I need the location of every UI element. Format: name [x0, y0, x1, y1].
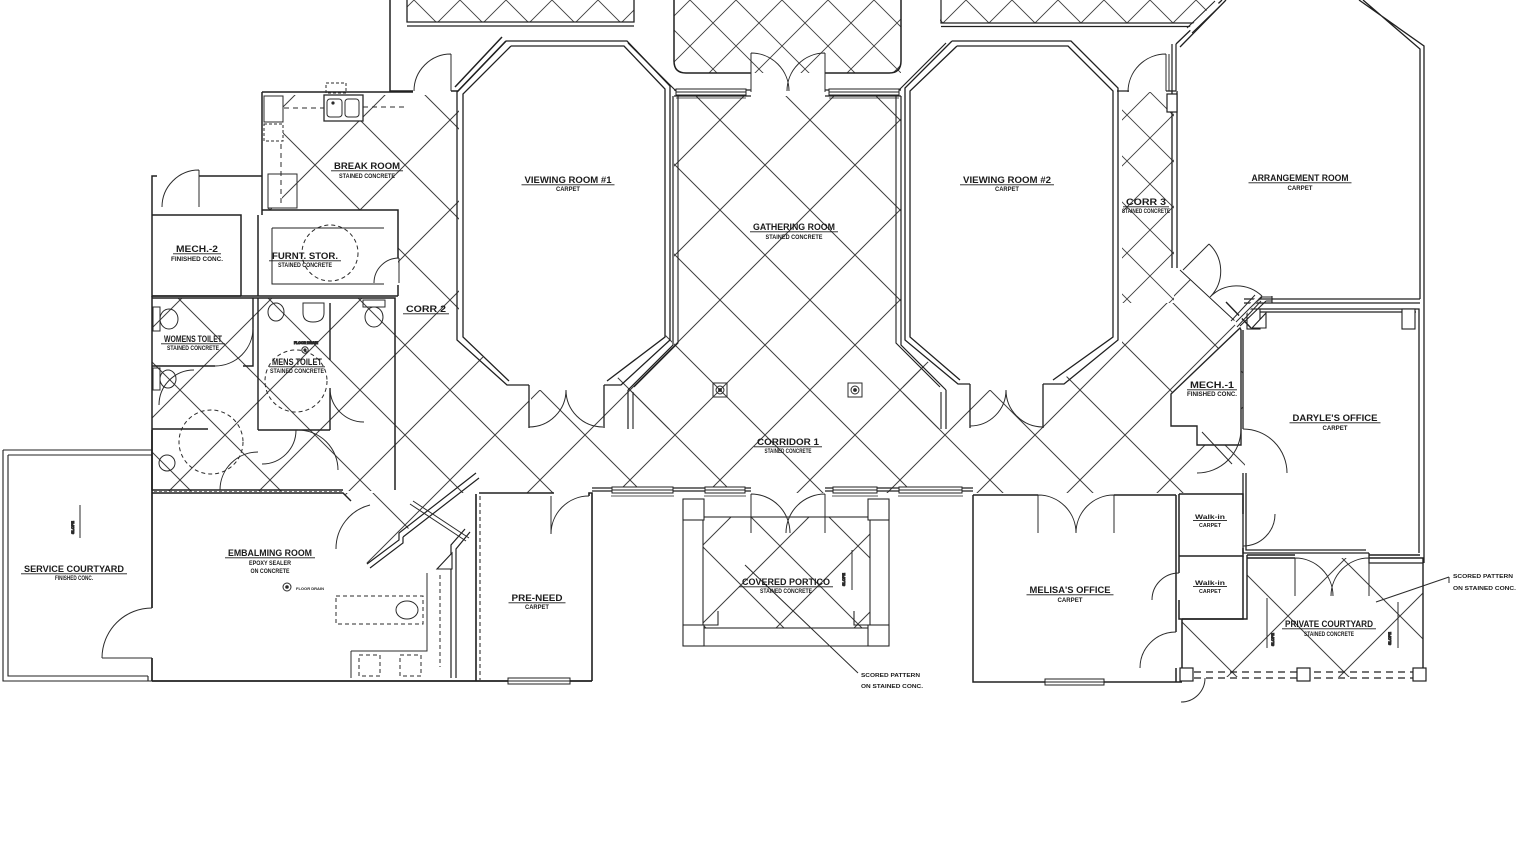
- svg-text:STAINED CONCRETE: STAINED CONCRETE: [1304, 632, 1354, 638]
- svg-text:STAINED CONCRETE: STAINED CONCRETE: [760, 589, 812, 595]
- svg-text:CARPET: CARPET: [1199, 523, 1221, 529]
- svg-text:CARPET: CARPET: [1199, 589, 1221, 595]
- svg-text:STAINED CONCRETE: STAINED CONCRETE: [278, 263, 332, 269]
- svg-text:Walk-in: Walk-in: [1195, 515, 1225, 521]
- svg-text:SLOPE: SLOPE: [842, 573, 846, 586]
- svg-text:STAINED CONCRETE: STAINED CONCRETE: [339, 174, 395, 180]
- svg-text:SLOPE: SLOPE: [71, 521, 75, 534]
- svg-text:CARPET: CARPET: [995, 187, 1019, 193]
- svg-text:FLOOR DRAIN: FLOOR DRAIN: [294, 341, 319, 345]
- svg-text:EPOXY SEALER: EPOXY SEALER: [249, 561, 292, 567]
- svg-text:CARPET: CARPET: [525, 605, 549, 611]
- svg-text:Walk-in: Walk-in: [1195, 581, 1225, 587]
- svg-text:SCORED PATTERN: SCORED PATTERN: [861, 673, 920, 679]
- svg-text:FINISHED CONC.: FINISHED CONC.: [171, 257, 223, 263]
- svg-text:FINISHED CONC.: FINISHED CONC.: [55, 576, 93, 582]
- svg-text:CARPET: CARPET: [556, 187, 580, 193]
- svg-text:ON CONCRETE: ON CONCRETE: [251, 569, 290, 575]
- svg-text:ON STAINED CONC.: ON STAINED CONC.: [1453, 586, 1517, 592]
- svg-text:ON STAINED CONC.: ON STAINED CONC.: [861, 684, 924, 690]
- svg-text:FLOOR DRAIN: FLOOR DRAIN: [296, 587, 324, 591]
- svg-text:SLOPE: SLOPE: [1388, 632, 1392, 645]
- svg-text:SLOPE: SLOPE: [1271, 633, 1275, 646]
- svg-text:CARPET: CARPET: [1288, 186, 1313, 192]
- svg-text:SCORED PATTERN: SCORED PATTERN: [1453, 574, 1514, 580]
- svg-text:STAINED CONCRETE: STAINED CONCRETE: [167, 346, 219, 352]
- svg-text:FINISHED CONC.: FINISHED CONC.: [1187, 392, 1237, 398]
- svg-text:STAINED CONCRETE: STAINED CONCRETE: [765, 449, 812, 455]
- svg-text:STAINED CONCRETE: STAINED CONCRETE: [270, 369, 324, 375]
- svg-text:STAINED CONCRETE: STAINED CONCRETE: [766, 235, 823, 241]
- svg-text:STAINED CONCRETE: STAINED CONCRETE: [1122, 209, 1170, 215]
- svg-text:CARPET: CARPET: [1323, 426, 1348, 432]
- svg-text:CARPET: CARPET: [1058, 598, 1083, 604]
